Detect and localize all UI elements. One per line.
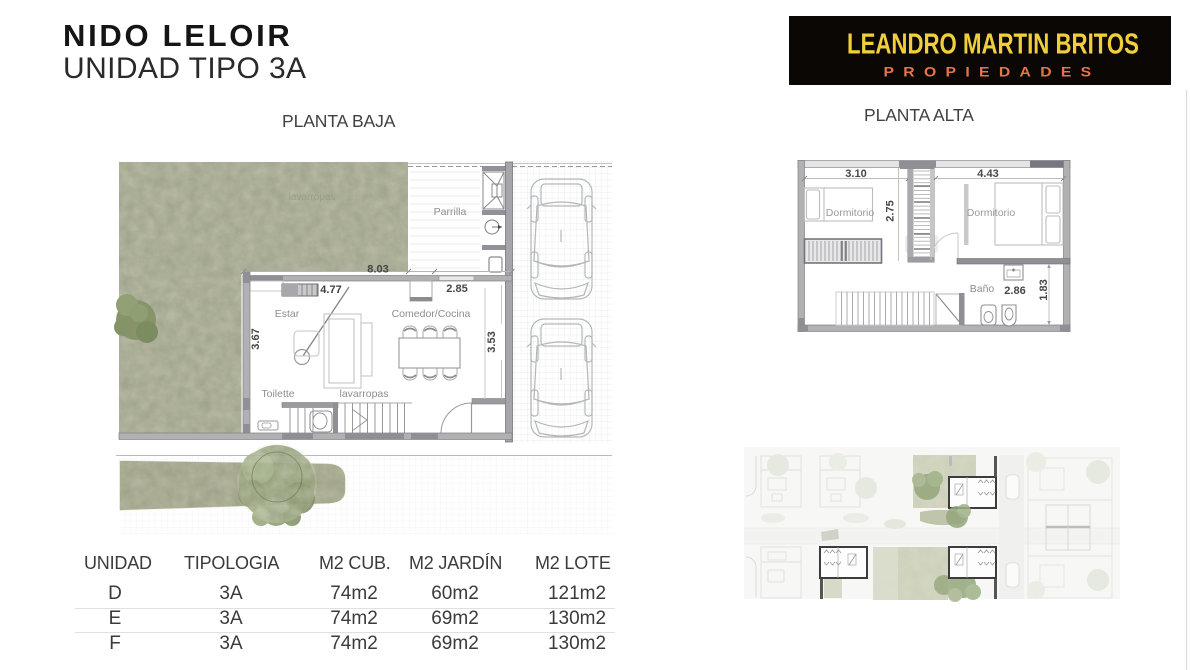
svg-text:Estar: Estar — [275, 308, 300, 320]
svg-text:1.83: 1.83 — [1038, 279, 1050, 300]
svg-text:3.67: 3.67 — [250, 328, 262, 349]
svg-text:4.77: 4.77 — [320, 284, 341, 296]
svg-text:3.53: 3.53 — [486, 331, 498, 352]
svg-text:3.10: 3.10 — [845, 168, 866, 180]
svg-text:8.03: 8.03 — [367, 264, 388, 276]
svg-text:4.43: 4.43 — [977, 168, 998, 180]
svg-text:Parrilla: Parrilla — [434, 206, 467, 218]
svg-text:Comedor/Cocina: Comedor/Cocina — [392, 308, 471, 320]
svg-text:lavarropas: lavarropas — [289, 192, 336, 203]
svg-text:2.75: 2.75 — [885, 200, 897, 221]
svg-text:2.86: 2.86 — [1004, 285, 1025, 297]
svg-text:Dormitorio: Dormitorio — [826, 207, 875, 219]
svg-text:2.85: 2.85 — [446, 283, 467, 295]
svg-text:Toilette: Toilette — [261, 388, 294, 400]
svg-text:Dormitorio: Dormitorio — [967, 207, 1016, 219]
svg-text:Baño: Baño — [970, 283, 995, 295]
svg-text:lavarropas: lavarropas — [339, 388, 388, 400]
